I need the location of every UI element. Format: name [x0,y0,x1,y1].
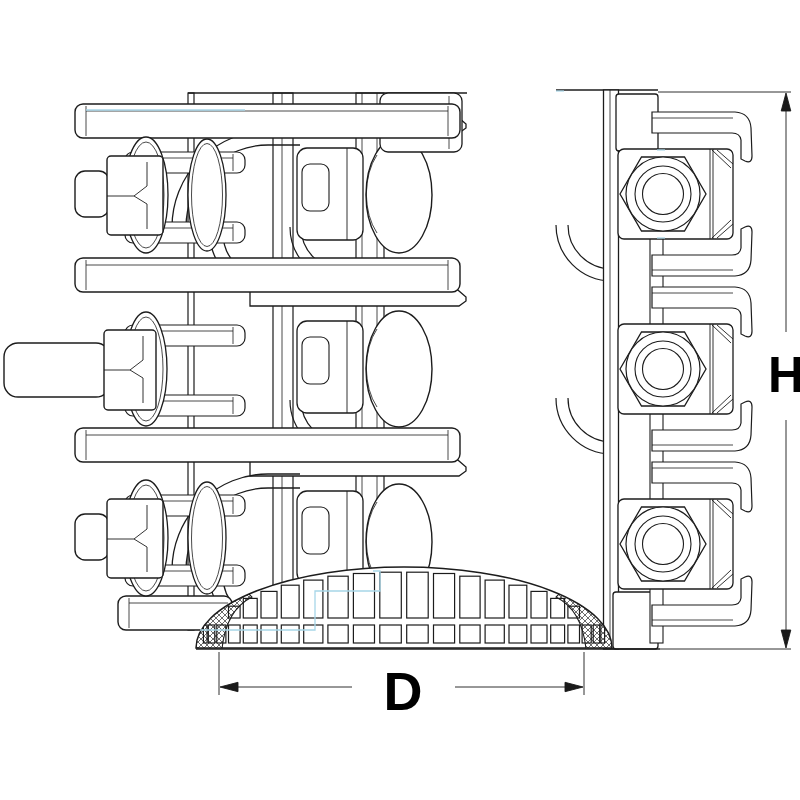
strip-tab-1 [650,238,663,325]
pipe-clamp-technical-drawing: D H [0,0,800,800]
post-b [273,93,293,630]
lug-block-row1 [297,148,363,240]
bolt-tip-3 [75,514,109,560]
height-label: H [768,347,800,403]
nut-modules [556,91,752,626]
dome-outline [196,567,612,648]
bolt-row2 [4,312,167,426]
h-arrow-up-icon [781,93,791,111]
band-strap-1 [75,104,460,138]
lug-block-row2 [297,321,363,413]
bolts [4,137,168,596]
strip-tab-2 [650,413,663,500]
h-arrow-down-icon [781,630,791,648]
diameter-label: D [384,661,423,721]
bolt-shaft-2 [4,343,110,397]
bolt-end-caps [366,137,432,600]
lug-blocks [297,148,363,583]
bolt-tip-1 [75,171,109,217]
band-strap-3 [75,428,460,462]
nut-module-2 [618,287,752,451]
d-arrow-left-icon [220,682,238,691]
band-strap-2 [75,258,460,292]
technical-drawing-page: D H [0,0,800,800]
gasket-mesh-dome [193,567,615,649]
d-arrow-right-icon [565,682,583,691]
bolt-row1 [75,137,168,253]
bolt-row3 [75,480,168,596]
